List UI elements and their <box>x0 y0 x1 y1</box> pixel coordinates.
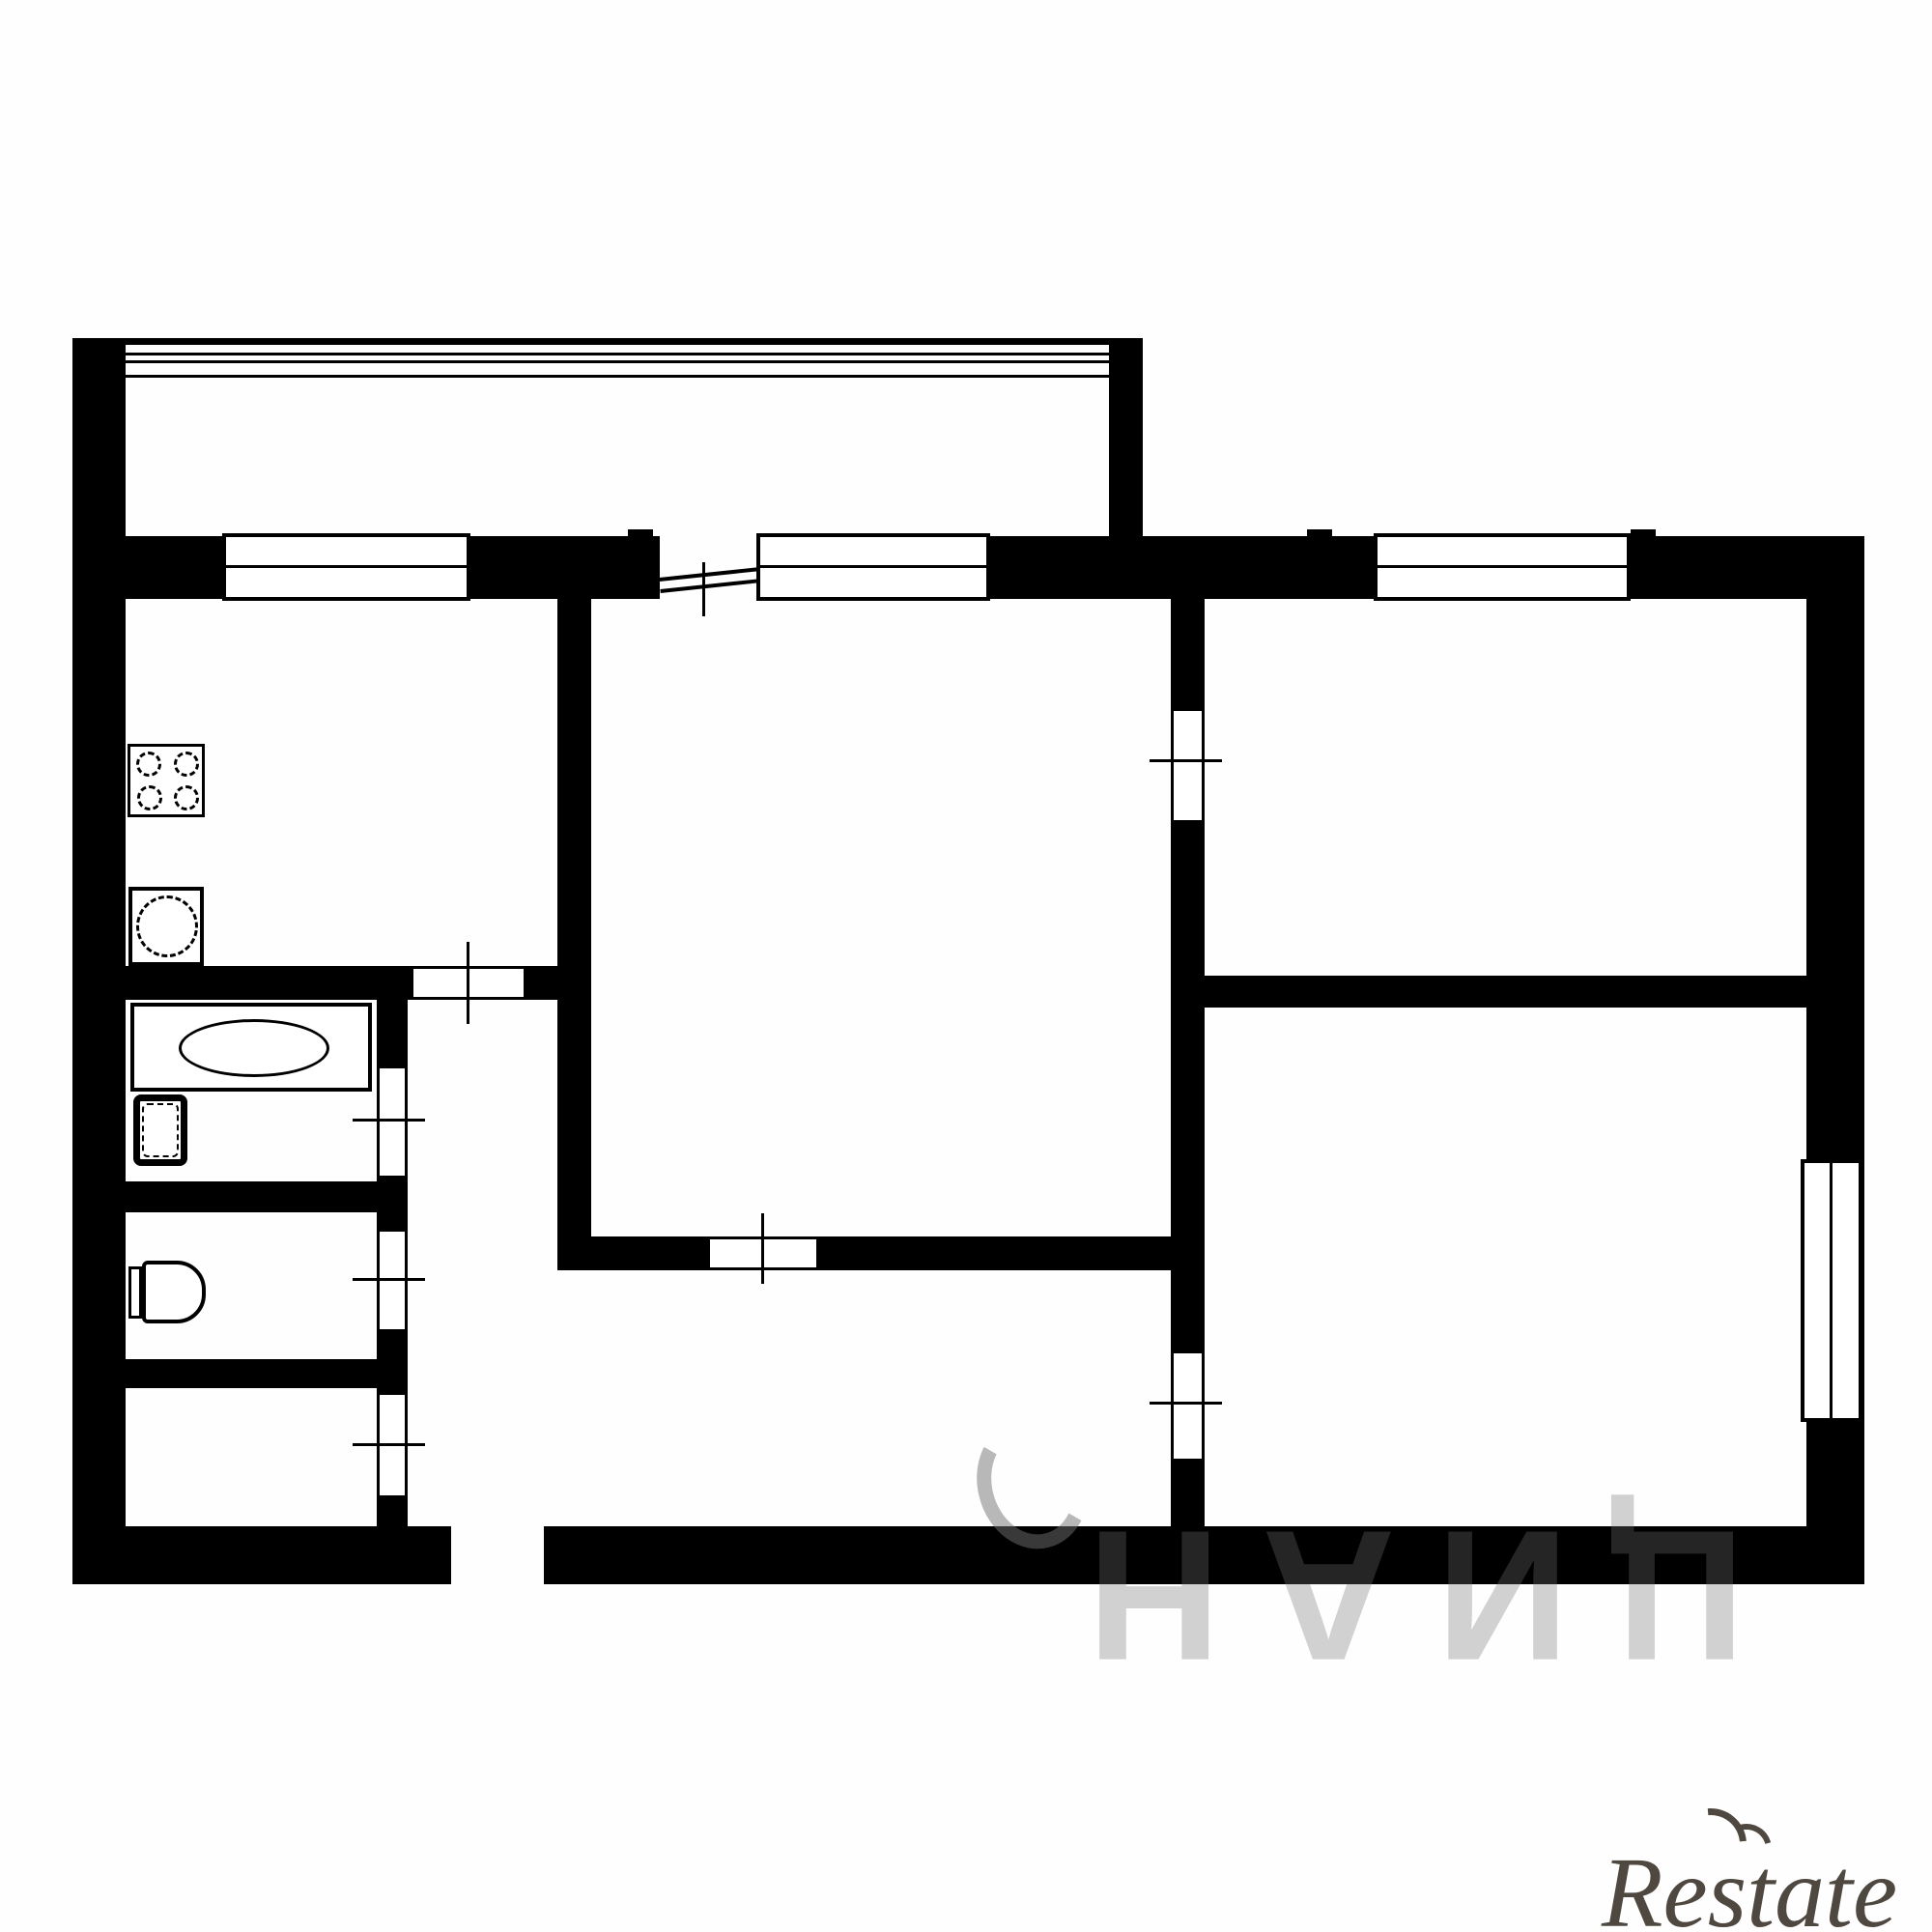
side-room-window-mullion <box>1830 1163 1833 1418</box>
living-room-window <box>756 533 990 601</box>
balcony-door-tick <box>702 562 705 616</box>
bathroom-sink-bowl <box>142 1103 179 1157</box>
toilet-tank <box>128 1266 142 1319</box>
kitchen-window-mullion <box>226 565 467 568</box>
stove-burner-3 <box>137 785 162 810</box>
toilet-bowl <box>142 1261 206 1323</box>
closet-door-tick <box>353 1443 425 1446</box>
living-bottom-wall-left <box>557 1236 707 1270</box>
bedroom-door-tick <box>1150 759 1222 762</box>
living-room-door-tick <box>761 1213 764 1284</box>
stove-burner-2 <box>174 752 199 777</box>
stove <box>128 744 205 817</box>
balcony-glazing-line-4 <box>77 375 1138 378</box>
cian-watermark: ЦИАН <box>1046 1490 1746 1703</box>
bathtub <box>130 1003 372 1092</box>
living-room-window-mullion <box>760 565 986 568</box>
living-right-wall-seg2 <box>1171 823 1205 1350</box>
top-wall-seg-mid1 <box>470 536 660 599</box>
left-exterior-wall <box>72 338 126 1584</box>
balcony-right-wall <box>1109 338 1143 536</box>
kitchen-window <box>222 533 470 601</box>
balcony-glazing-line-1 <box>72 338 1143 345</box>
window-sill-nub-3 <box>1631 529 1656 541</box>
top-wall-seg-mid2 <box>990 536 1374 599</box>
kitchen-living-wall <box>557 599 591 1270</box>
bedroom-door-opening <box>1171 708 1205 823</box>
bathroom-door-tick <box>353 1119 425 1122</box>
bathtub-basin <box>179 1019 329 1077</box>
toilet <box>128 1261 208 1324</box>
window-sill-nub-1 <box>628 529 653 541</box>
living-bottom-wall-right <box>819 1236 1205 1270</box>
stove-burner-1 <box>136 752 161 777</box>
right-exterior-wall <box>1806 536 1864 1584</box>
window-sill-nub-2 <box>1307 529 1332 541</box>
side-room-door-opening <box>1171 1350 1205 1462</box>
wet-column-wall-seg4 <box>377 1498 408 1526</box>
top-wall-seg-left <box>72 536 222 599</box>
balcony-glazing-line-3 <box>77 360 1138 363</box>
bedroom-window-mullion <box>1378 565 1627 568</box>
living-right-wall-seg1 <box>1171 599 1205 708</box>
toilet-bottom-wall <box>126 1359 408 1388</box>
bathroom-bottom-wall <box>126 1181 408 1212</box>
bedroom-window <box>1374 533 1631 601</box>
kitchen-door-tick <box>467 942 469 1024</box>
side-room-door-tick <box>1150 1402 1222 1405</box>
bottom-wall-left-of-entrance <box>72 1526 451 1584</box>
balcony-door-leaf <box>659 567 758 593</box>
side-room-window <box>1801 1159 1862 1422</box>
stove-burner-4 <box>174 785 199 810</box>
kitchen-bottom-wall-right <box>526 966 591 1000</box>
wet-column-wall-seg1 <box>377 1000 408 1065</box>
bathroom-door-opening <box>377 1065 408 1179</box>
floor-plan-image: ЦИАН Restate <box>0 0 1932 1932</box>
bathroom-sink <box>133 1094 187 1166</box>
kitchen-bottom-wall-left <box>126 966 411 1000</box>
kitchen-sink-bowl <box>136 895 198 957</box>
kitchen-sink <box>128 887 204 966</box>
toilet-door-tick <box>353 1278 425 1281</box>
right-rooms-divider-wall <box>1205 976 1806 1008</box>
balcony-glazing-line-2 <box>77 353 1138 355</box>
